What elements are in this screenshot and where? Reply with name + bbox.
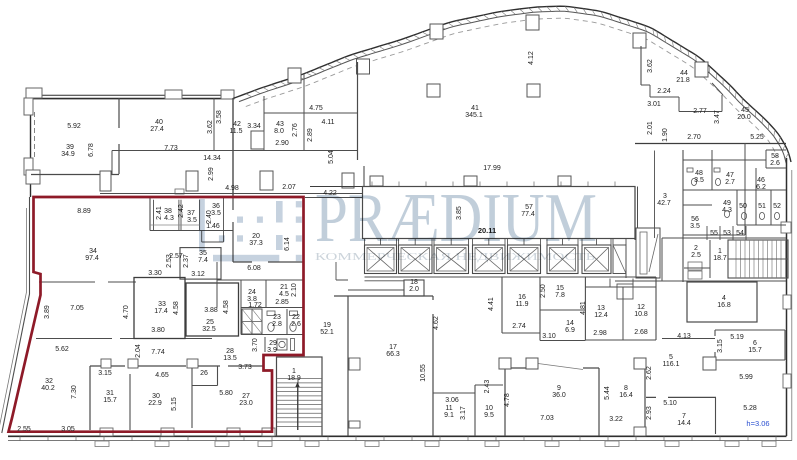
- svg-text:1.72: 1.72: [248, 302, 262, 309]
- svg-text:3.12: 3.12: [191, 271, 205, 278]
- svg-text:2.74: 2.74: [512, 323, 526, 330]
- svg-text:3.62: 3.62: [207, 120, 214, 134]
- svg-text:2.24: 2.24: [657, 88, 671, 95]
- svg-text:2.53: 2.53: [166, 254, 173, 268]
- svg-text:5.15: 5.15: [171, 397, 178, 411]
- svg-text:6.9: 6.9: [565, 327, 575, 334]
- svg-text:4.12: 4.12: [528, 51, 535, 65]
- svg-text:18: 18: [410, 279, 418, 286]
- svg-text:52.1: 52.1: [320, 329, 334, 336]
- svg-text:4.98: 4.98: [225, 185, 239, 192]
- svg-text:43: 43: [276, 121, 284, 128]
- svg-text:40: 40: [155, 119, 163, 126]
- svg-text:7.05: 7.05: [70, 305, 84, 312]
- svg-text:27: 27: [242, 393, 250, 400]
- svg-text:11.9: 11.9: [515, 301, 528, 308]
- svg-text:46: 46: [757, 177, 765, 184]
- svg-text:2.5: 2.5: [691, 252, 701, 259]
- svg-text:37.3: 37.3: [249, 240, 263, 247]
- svg-text:47: 47: [726, 172, 734, 179]
- svg-text:5.92: 5.92: [67, 123, 81, 130]
- svg-text:3.9: 3.9: [267, 347, 277, 354]
- svg-text:55: 55: [710, 230, 718, 237]
- svg-text:50: 50: [739, 203, 747, 210]
- svg-text:4.58: 4.58: [223, 300, 230, 314]
- svg-text:7.30: 7.30: [71, 385, 78, 399]
- svg-text:5.04: 5.04: [328, 150, 335, 164]
- svg-text:3.22: 3.22: [609, 416, 623, 423]
- svg-text:3: 3: [663, 193, 667, 200]
- svg-text:4.13: 4.13: [677, 333, 691, 340]
- svg-text:3.17: 3.17: [460, 406, 467, 420]
- svg-text:10: 10: [485, 405, 493, 412]
- svg-text:3.5: 3.5: [690, 223, 700, 230]
- svg-text:3.06: 3.06: [445, 397, 459, 404]
- svg-text:34.9: 34.9: [61, 151, 75, 158]
- svg-text:2.7: 2.7: [725, 179, 735, 186]
- svg-text:42.7: 42.7: [657, 200, 671, 207]
- svg-text:14.34: 14.34: [203, 155, 221, 162]
- svg-text:3.15: 3.15: [717, 339, 724, 353]
- svg-text:5: 5: [669, 354, 673, 361]
- svg-text:7.03: 7.03: [540, 415, 554, 422]
- svg-text:3.47: 3.47: [714, 110, 721, 124]
- svg-text:2.8: 2.8: [272, 321, 282, 328]
- svg-text:25: 25: [206, 319, 214, 326]
- svg-text:15: 15: [556, 285, 564, 292]
- svg-text:4.78: 4.78: [504, 393, 511, 407]
- svg-text:5.62: 5.62: [55, 346, 69, 353]
- svg-text:32: 32: [45, 378, 53, 385]
- svg-text:8: 8: [624, 385, 628, 392]
- svg-text:3.10: 3.10: [542, 333, 556, 340]
- svg-text:2.76: 2.76: [292, 123, 299, 137]
- svg-text:3.5: 3.5: [187, 217, 197, 224]
- svg-text:PRÆDIUM: PRÆDIUM: [315, 180, 597, 257]
- svg-text:36: 36: [212, 203, 220, 210]
- svg-text:2.0: 2.0: [409, 286, 419, 293]
- svg-text:2.10: 2.10: [291, 283, 298, 297]
- svg-text:7.74: 7.74: [151, 349, 165, 356]
- svg-text:33: 33: [158, 301, 166, 308]
- svg-text:2.77: 2.77: [693, 108, 707, 115]
- svg-text:24: 24: [248, 289, 256, 296]
- svg-text:9.1: 9.1: [444, 412, 454, 419]
- svg-text:2.55: 2.55: [17, 426, 31, 433]
- svg-text:4.11: 4.11: [321, 119, 334, 126]
- svg-text:14.4: 14.4: [677, 420, 691, 427]
- svg-text:36.0: 36.0: [552, 392, 566, 399]
- svg-text:23.0: 23.0: [239, 400, 253, 407]
- svg-text:345.1: 345.1: [465, 112, 483, 119]
- svg-text:9: 9: [557, 385, 561, 392]
- svg-text:40.2: 40.2: [41, 385, 55, 392]
- svg-text:1: 1: [718, 248, 722, 255]
- svg-text:2.42: 2.42: [178, 204, 185, 218]
- svg-text:53: 53: [723, 230, 731, 237]
- svg-text:7: 7: [682, 413, 686, 420]
- svg-text:5.19: 5.19: [730, 334, 744, 341]
- svg-text:20.0: 20.0: [737, 114, 751, 121]
- svg-text:3.05: 3.05: [61, 426, 75, 433]
- svg-text:9.5: 9.5: [484, 412, 494, 419]
- svg-text:31: 31: [106, 390, 114, 397]
- svg-text:19: 19: [323, 322, 331, 329]
- svg-text:51: 51: [758, 203, 766, 210]
- svg-text:3.01: 3.01: [647, 101, 661, 108]
- svg-text:6.2: 6.2: [756, 184, 766, 191]
- svg-text:12.4: 12.4: [594, 312, 608, 319]
- svg-text:21.8: 21.8: [676, 77, 690, 84]
- svg-text:66.3: 66.3: [386, 351, 400, 358]
- svg-text:7.73: 7.73: [164, 145, 178, 152]
- svg-text:2.01: 2.01: [647, 121, 654, 135]
- svg-text:8.89: 8.89: [77, 208, 91, 215]
- svg-text:23: 23: [273, 314, 281, 321]
- svg-text:8.0: 8.0: [274, 128, 284, 135]
- svg-text:2.70: 2.70: [687, 134, 701, 141]
- svg-text:13: 13: [597, 305, 605, 312]
- svg-text:2.6: 2.6: [291, 321, 301, 328]
- svg-text:54: 54: [736, 230, 744, 237]
- svg-text:44: 44: [680, 70, 688, 77]
- svg-text:30: 30: [152, 393, 160, 400]
- svg-text:5.80: 5.80: [219, 390, 233, 397]
- svg-text:4.5: 4.5: [279, 291, 289, 298]
- svg-text:5.28: 5.28: [743, 405, 757, 412]
- svg-text:4.62: 4.62: [433, 316, 440, 330]
- svg-text:20: 20: [252, 233, 260, 240]
- svg-text:3.73: 3.73: [238, 364, 252, 371]
- svg-text:h=3.06: h=3.06: [746, 419, 769, 428]
- svg-text:3.30: 3.30: [148, 270, 162, 277]
- svg-text:3.80: 3.80: [151, 327, 165, 334]
- svg-text:22.9: 22.9: [148, 400, 162, 407]
- svg-text:2.89: 2.89: [307, 128, 314, 142]
- svg-text:28: 28: [226, 348, 234, 355]
- svg-text:3.58: 3.58: [216, 110, 223, 124]
- svg-text:5.25: 5.25: [750, 134, 764, 141]
- svg-text:42: 42: [233, 121, 241, 128]
- svg-text:4.58: 4.58: [173, 301, 180, 315]
- svg-text:3.89: 3.89: [44, 305, 51, 319]
- svg-text:16.8: 16.8: [717, 302, 731, 309]
- svg-text:4.3: 4.3: [164, 215, 174, 222]
- svg-text:32.5: 32.5: [202, 326, 216, 333]
- svg-text:7.4: 7.4: [198, 257, 208, 264]
- svg-text:15.7: 15.7: [103, 397, 117, 404]
- svg-text:6: 6: [753, 340, 757, 347]
- svg-text:56: 56: [691, 216, 699, 223]
- svg-text:4.65: 4.65: [155, 372, 169, 379]
- svg-text:2.93: 2.93: [646, 406, 653, 420]
- svg-text:1.90: 1.90: [662, 128, 669, 142]
- svg-text:13.5: 13.5: [223, 355, 237, 362]
- svg-text:17: 17: [389, 344, 397, 351]
- svg-text:6.14: 6.14: [284, 237, 291, 251]
- svg-text:2.62: 2.62: [646, 366, 653, 380]
- svg-text:11: 11: [445, 405, 452, 412]
- svg-text:3.62: 3.62: [647, 59, 654, 73]
- svg-text:2.50: 2.50: [540, 284, 547, 298]
- svg-text:2.90: 2.90: [275, 140, 289, 147]
- svg-text:10.55: 10.55: [420, 364, 427, 382]
- svg-text:2.40: 2.40: [206, 210, 213, 224]
- svg-text:27.4: 27.4: [150, 126, 164, 133]
- svg-text:17.99: 17.99: [483, 165, 501, 172]
- svg-text:2.43: 2.43: [484, 380, 491, 394]
- svg-text:2: 2: [694, 245, 698, 252]
- svg-text:16: 16: [518, 294, 526, 301]
- svg-text:48: 48: [695, 170, 703, 177]
- svg-text:7.8: 7.8: [555, 292, 565, 299]
- svg-text:2.37: 2.37: [183, 254, 190, 268]
- svg-text:58: 58: [771, 153, 779, 160]
- svg-text:КОММЕРЧЕСКАЯ НЕДВИЖИМОСТЬ: КОММЕРЧЕСКАЯ НЕДВИЖИМОСТЬ: [315, 252, 595, 263]
- svg-text:3.34: 3.34: [247, 123, 261, 130]
- svg-text:2.98: 2.98: [593, 330, 607, 337]
- svg-text:4.70: 4.70: [123, 305, 130, 319]
- svg-text:18.9: 18.9: [287, 375, 301, 382]
- svg-text:22: 22: [292, 314, 300, 321]
- svg-text:14: 14: [566, 320, 574, 327]
- svg-text:116.1: 116.1: [663, 361, 680, 368]
- svg-text:2.99: 2.99: [208, 167, 215, 181]
- svg-text:6.78: 6.78: [88, 143, 95, 157]
- svg-text:12: 12: [637, 304, 645, 311]
- svg-text:3.15: 3.15: [98, 370, 112, 377]
- svg-text:52: 52: [773, 203, 781, 210]
- svg-text:38: 38: [164, 208, 172, 215]
- svg-text:5.44: 5.44: [604, 386, 611, 400]
- svg-text:5.10: 5.10: [663, 400, 677, 407]
- svg-text:17.4: 17.4: [154, 308, 168, 315]
- svg-text:34: 34: [89, 248, 97, 255]
- svg-text:2.68: 2.68: [634, 329, 648, 336]
- svg-text:3.5: 3.5: [694, 177, 704, 184]
- svg-text:5.99: 5.99: [739, 374, 753, 381]
- svg-text:3.88: 3.88: [204, 307, 218, 314]
- svg-text:2.85: 2.85: [275, 299, 289, 306]
- svg-text:18.7: 18.7: [713, 255, 727, 262]
- svg-text:49: 49: [723, 200, 731, 207]
- svg-text:3.70: 3.70: [252, 338, 259, 352]
- svg-text:15.7: 15.7: [748, 347, 762, 354]
- svg-text:4.81: 4.81: [580, 301, 587, 315]
- svg-text:29: 29: [269, 340, 277, 347]
- svg-text:39: 39: [66, 144, 74, 151]
- svg-text:45: 45: [741, 107, 749, 114]
- svg-text:2.04: 2.04: [135, 344, 142, 358]
- svg-text:6.08: 6.08: [247, 265, 261, 272]
- svg-text:1: 1: [292, 368, 296, 375]
- svg-text:26: 26: [200, 370, 208, 377]
- svg-text:2.6: 2.6: [770, 160, 780, 167]
- svg-text:37: 37: [187, 210, 195, 217]
- svg-text:10.8: 10.8: [634, 311, 648, 318]
- svg-text:11.5: 11.5: [229, 128, 242, 135]
- svg-text:4: 4: [722, 295, 726, 302]
- svg-text:4.41: 4.41: [488, 297, 495, 311]
- svg-text:97.4: 97.4: [85, 255, 99, 262]
- svg-text:2.41: 2.41: [156, 206, 163, 220]
- svg-text:41: 41: [471, 105, 479, 112]
- svg-text:2.07: 2.07: [282, 184, 296, 191]
- svg-text:4.75: 4.75: [309, 105, 323, 112]
- svg-text:21: 21: [280, 284, 288, 291]
- svg-text:4.3: 4.3: [722, 207, 732, 214]
- svg-text:16.4: 16.4: [619, 392, 633, 399]
